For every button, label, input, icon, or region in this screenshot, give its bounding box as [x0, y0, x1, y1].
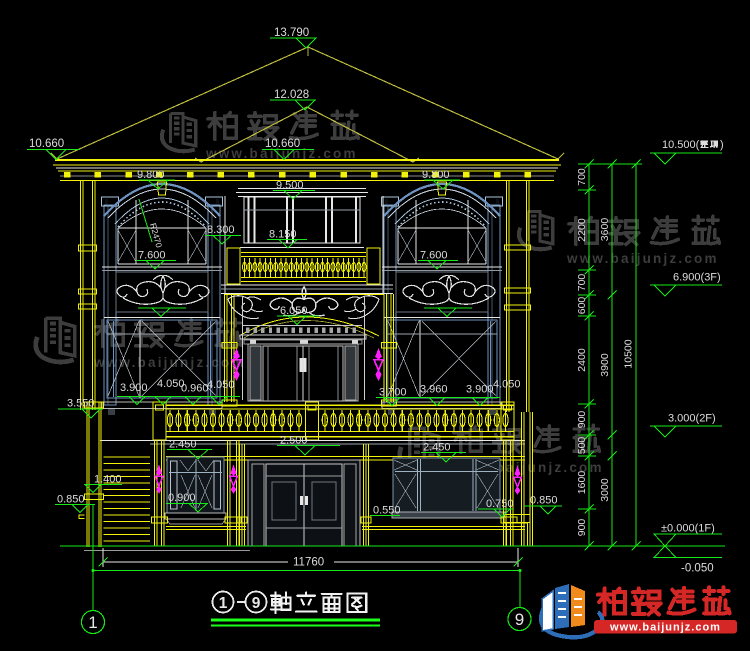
svg-text:9.500: 9.500 [276, 180, 304, 192]
svg-text:600: 600 [576, 297, 588, 315]
svg-text:±0.000(1F): ±0.000(1F) [661, 523, 715, 535]
svg-text:2400: 2400 [576, 348, 588, 372]
svg-text:9.800: 9.800 [422, 169, 450, 181]
svg-text:8.300: 8.300 [207, 224, 235, 236]
svg-text:7.600: 7.600 [138, 250, 166, 262]
svg-text:3.900: 3.900 [120, 382, 148, 394]
svg-text:1: 1 [88, 613, 97, 632]
svg-text:500: 500 [576, 437, 588, 455]
svg-text:9: 9 [515, 610, 524, 629]
svg-text:8.150: 8.150 [269, 229, 297, 241]
svg-text:7.600: 7.600 [420, 250, 448, 262]
svg-text:10.660: 10.660 [265, 138, 300, 150]
svg-text:4.050: 4.050 [493, 379, 521, 391]
svg-text:1600: 1600 [576, 471, 588, 495]
svg-text:0.960: 0.960 [181, 383, 209, 395]
svg-text:2.450: 2.450 [169, 439, 197, 451]
svg-text:900: 900 [576, 411, 588, 429]
svg-text:0.850: 0.850 [530, 495, 558, 507]
svg-text:700: 700 [576, 274, 588, 292]
svg-text:0.850: 0.850 [57, 494, 85, 506]
svg-text:3.550: 3.550 [67, 398, 95, 410]
svg-text:11760: 11760 [293, 557, 324, 569]
svg-text:3.000(2F): 3.000(2F) [668, 413, 716, 425]
svg-text:4.050: 4.050 [207, 379, 235, 391]
svg-text:3900: 3900 [599, 353, 611, 377]
svg-text:700: 700 [576, 168, 588, 186]
svg-text:0.900: 0.900 [168, 492, 196, 504]
svg-text:-0.050: -0.050 [681, 563, 714, 575]
svg-text:10500: 10500 [623, 339, 635, 368]
svg-text:2200: 2200 [576, 218, 588, 242]
svg-text:6.900(3F): 6.900(3F) [673, 272, 721, 284]
svg-text:0.750: 0.750 [486, 498, 514, 510]
svg-text:3.960: 3.960 [420, 384, 448, 396]
svg-text:10.660: 10.660 [29, 138, 64, 150]
svg-text:2.450: 2.450 [423, 442, 451, 454]
svg-text:3.900: 3.900 [466, 384, 494, 396]
svg-text:10.500(: 10.500( [662, 139, 700, 151]
svg-text:1: 1 [219, 595, 228, 612]
svg-text:9: 9 [252, 595, 261, 612]
svg-text:1.400: 1.400 [94, 474, 122, 486]
svg-text:13.790: 13.790 [274, 27, 309, 39]
svg-text:12.028: 12.028 [274, 89, 309, 101]
svg-text:3000: 3000 [599, 478, 611, 502]
svg-text:900: 900 [576, 519, 588, 537]
svg-text:0.550: 0.550 [373, 505, 401, 517]
svg-text:6.050: 6.050 [280, 305, 308, 317]
svg-text:): ) [720, 139, 724, 151]
svg-text:2.500: 2.500 [280, 435, 308, 447]
svg-text:3.700: 3.700 [379, 387, 407, 399]
svg-text:9.800: 9.800 [137, 169, 165, 181]
svg-text:www.baijunjz.com: www.baijunjz.com [609, 622, 721, 634]
svg-text:3600: 3600 [599, 218, 611, 242]
